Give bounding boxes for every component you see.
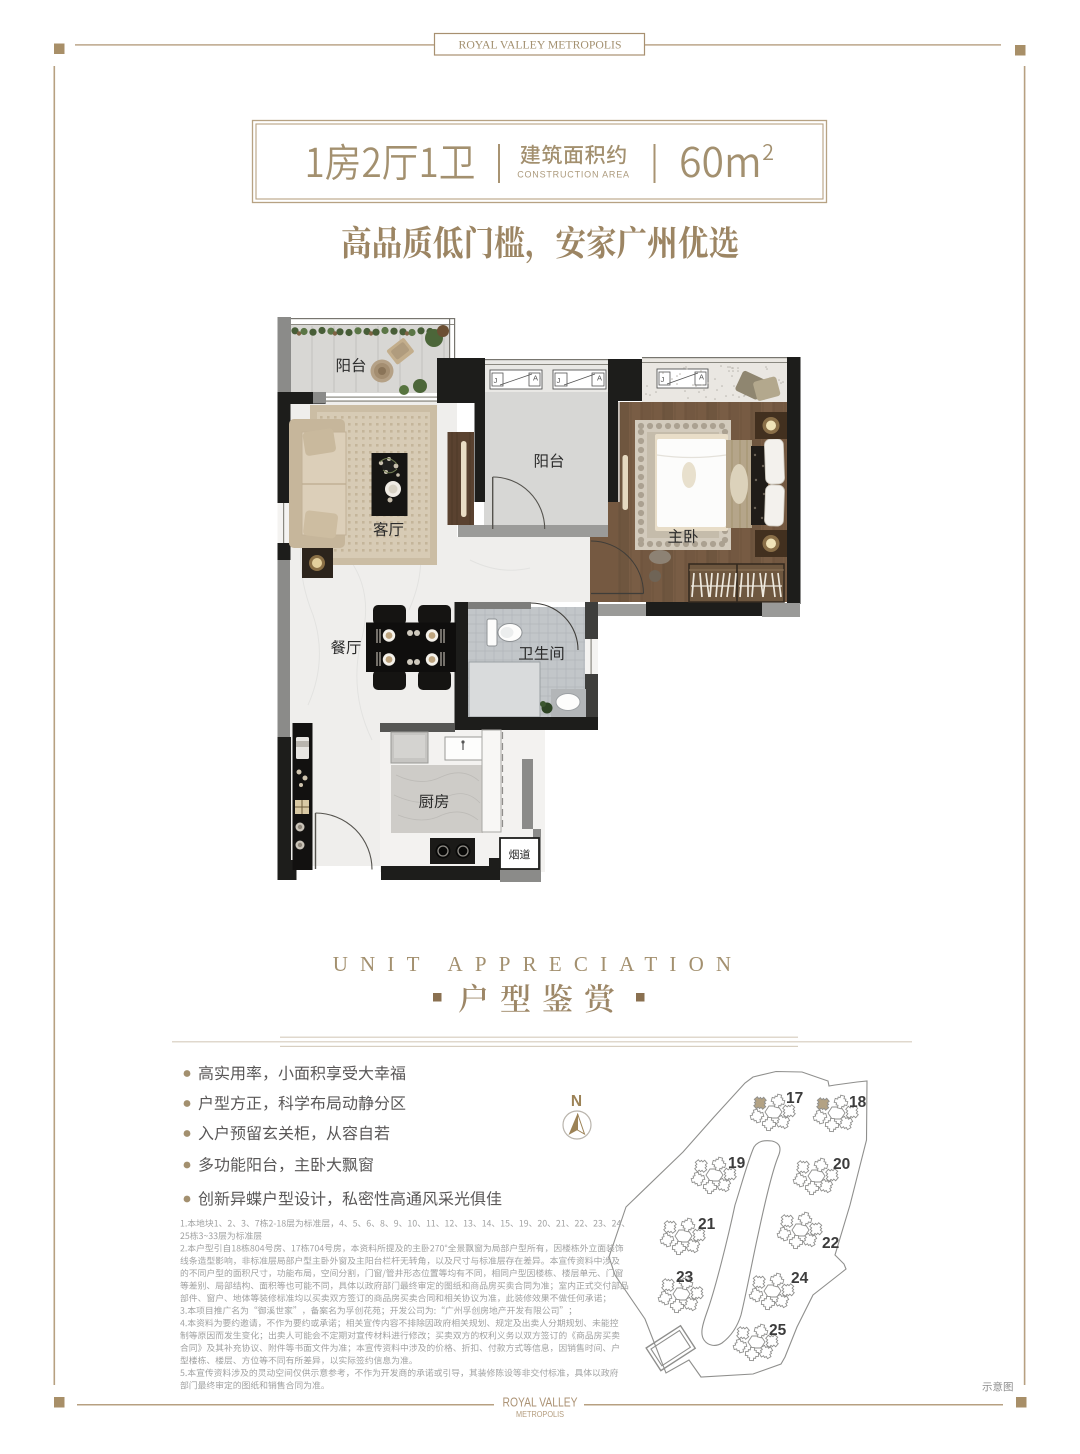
- svg-text:19: 19: [728, 1155, 746, 1172]
- svg-text:23: 23: [676, 1269, 694, 1286]
- svg-text:ROYAL VALLEY METROPOLIS: ROYAL VALLEY METROPOLIS: [459, 40, 622, 52]
- svg-text:METROPOLIS: METROPOLIS: [516, 1409, 564, 1419]
- svg-text:UNIT APPRECIATION: UNIT APPRECIATION: [333, 952, 744, 976]
- svg-text:24: 24: [791, 1270, 809, 1287]
- svg-text:J: J: [557, 376, 561, 385]
- svg-text:A: A: [533, 374, 538, 383]
- svg-text:A: A: [597, 374, 602, 383]
- svg-text:N: N: [571, 1093, 582, 1110]
- svg-text:21: 21: [698, 1216, 716, 1233]
- svg-text:25: 25: [769, 1322, 787, 1339]
- svg-text:A: A: [699, 373, 704, 382]
- svg-text:J: J: [494, 376, 498, 385]
- svg-text:ROYAL VALLEY: ROYAL VALLEY: [503, 1395, 578, 1410]
- svg-text:22: 22: [822, 1235, 839, 1252]
- svg-text:18: 18: [849, 1094, 867, 1111]
- svg-text:17: 17: [786, 1090, 803, 1107]
- svg-text:J: J: [661, 375, 665, 384]
- svg-text:20: 20: [833, 1156, 850, 1173]
- svg-text:CONSTRUCTION AREA: CONSTRUCTION AREA: [517, 170, 630, 180]
